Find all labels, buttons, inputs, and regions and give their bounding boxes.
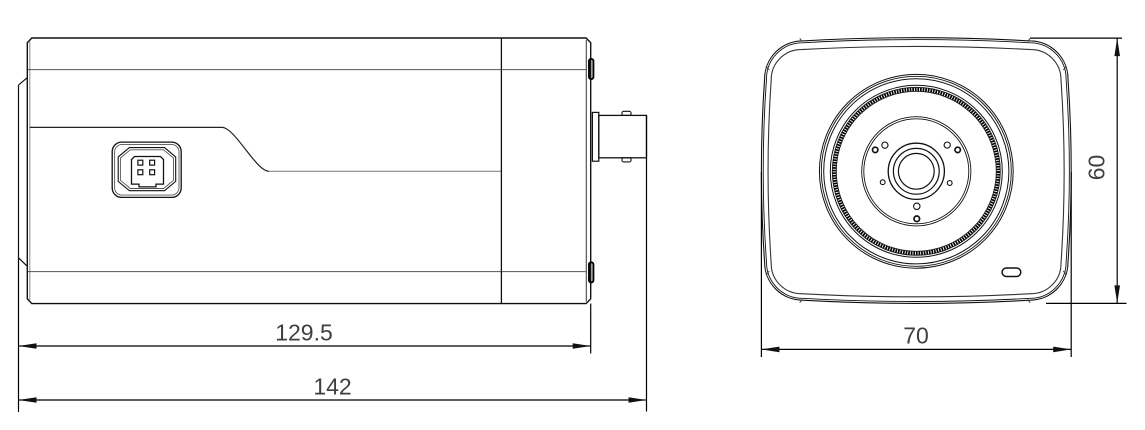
svg-text:129.5: 129.5: [275, 320, 333, 346]
svg-text:142: 142: [313, 374, 351, 400]
svg-text:60: 60: [1084, 155, 1110, 181]
svg-text:70: 70: [903, 323, 929, 349]
